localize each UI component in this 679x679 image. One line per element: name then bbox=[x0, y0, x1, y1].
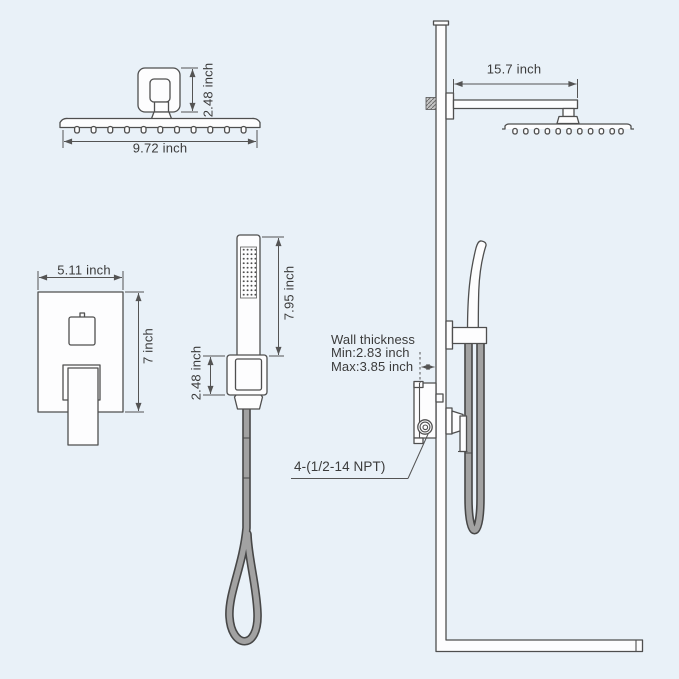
wall-thickness-max: Max:3.85 inch bbox=[331, 360, 415, 373]
hand-shower-view bbox=[203, 235, 284, 641]
valve-trim-front-view bbox=[38, 271, 144, 445]
head-width-label: 9.72 inch bbox=[133, 141, 188, 156]
arm-dimension bbox=[454, 79, 578, 98]
bracket-height-label: 2.48 inch bbox=[189, 346, 204, 401]
wall-nipple bbox=[426, 98, 436, 110]
overhead-shower-side-view bbox=[60, 68, 260, 148]
wall-thickness-dimension bbox=[420, 352, 435, 383]
arm-length-label: 15.7 inch bbox=[487, 62, 542, 77]
wall-thickness-note: Wall thickness Min:2.83 inch Max:3.85 in… bbox=[331, 333, 415, 373]
wall-thickness-title: Wall thickness bbox=[331, 333, 415, 346]
spray-face bbox=[241, 247, 257, 298]
valve-height-label: 7 inch bbox=[141, 328, 156, 364]
wall-thickness-min: Min:2.83 inch bbox=[331, 346, 415, 359]
wand-height-label: 7.95 inch bbox=[281, 266, 296, 321]
hand-shower-wand-right bbox=[468, 241, 487, 331]
npt-note: 4-(1/2-14 NPT) bbox=[294, 460, 385, 473]
valve-width-label: 5.11 inch bbox=[57, 263, 111, 278]
head-mount-height-label: 2.48 inch bbox=[200, 63, 215, 118]
right-head-nozzles bbox=[513, 129, 623, 135]
diagram-canvas: 2.48 inch 9.72 inch 15.7 inch 5.11 inch … bbox=[0, 0, 679, 679]
